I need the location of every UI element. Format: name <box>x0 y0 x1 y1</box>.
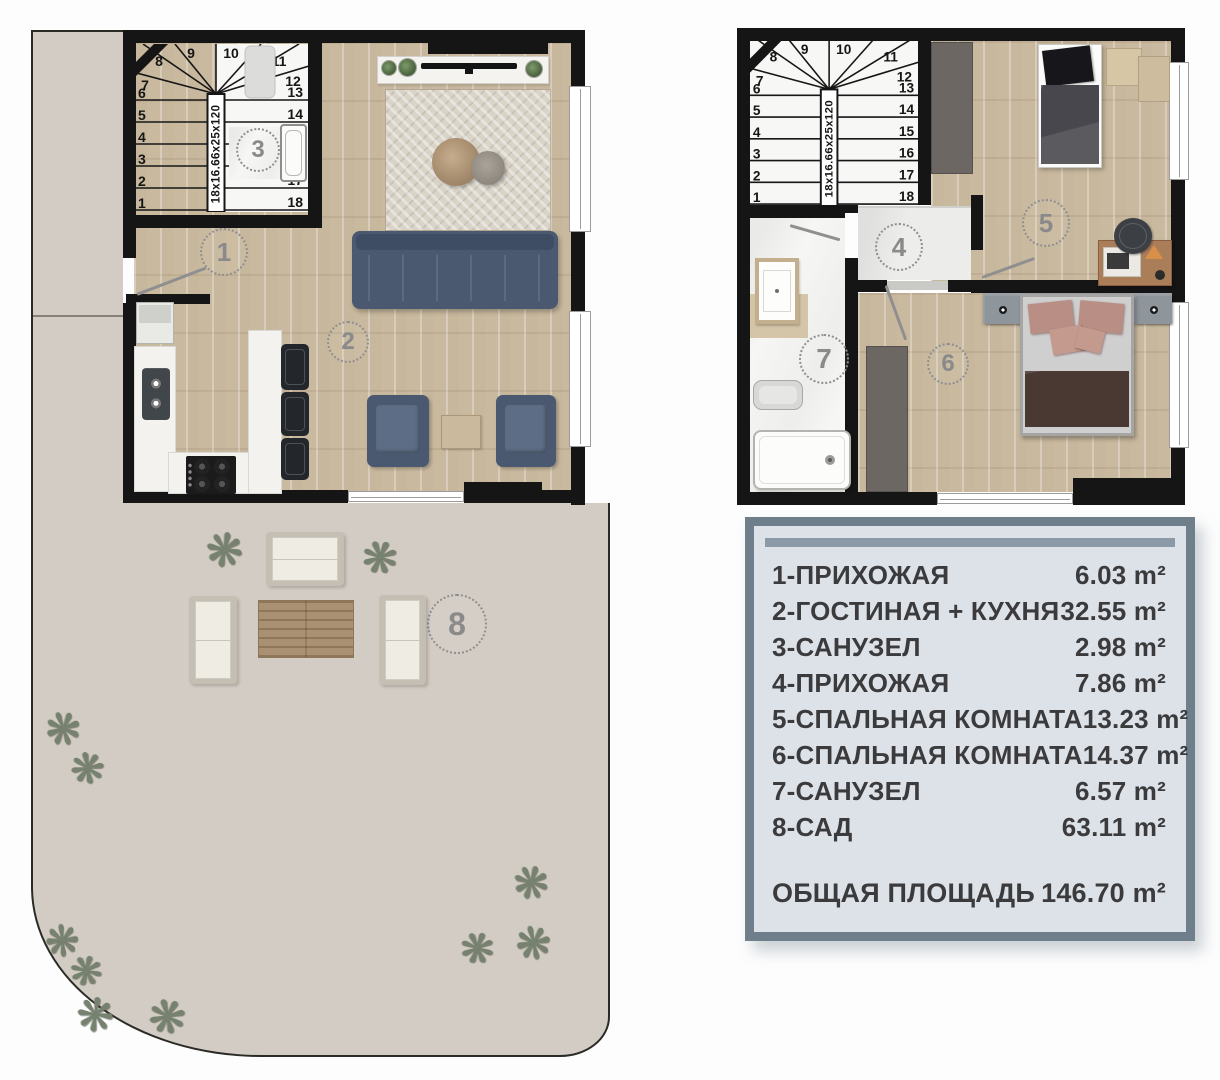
room-area: 14.37 m² <box>1083 740 1189 771</box>
room-label: 4-ПРИХОЖАЯ <box>772 668 949 699</box>
plant-icon: ❋ <box>73 990 118 1041</box>
wall-hall-stub-l <box>845 280 887 292</box>
room-marker-5: 5 <box>1022 199 1070 247</box>
plant-pot-icon <box>526 61 542 77</box>
garden-armchair-right <box>379 595 426 685</box>
hall4-edge <box>858 206 971 208</box>
side-coffee-table <box>471 151 505 185</box>
sliding-door <box>348 491 464 502</box>
wall-right-b <box>571 232 585 313</box>
room-label: 3-САНУЗЕЛ <box>772 632 921 663</box>
bar-stool-1 <box>281 344 309 390</box>
nightstand-left <box>985 296 1021 324</box>
room-marker-6: 6 <box>927 343 969 385</box>
sofa <box>352 231 558 309</box>
garden-table <box>258 600 354 658</box>
room-marker-1: 1 <box>200 228 248 276</box>
wall-bottom-u-b <box>1073 478 1172 505</box>
legend-panel: 1-ПРИХОЖАЯ 6.03 m² 2-ГОСТИНАЯ + КУХНЯ 32… <box>745 517 1195 941</box>
room-label: 5-СПАЛЬНАЯ КОМНАТА <box>772 704 1083 735</box>
svg-text:7: 7 <box>141 77 149 93</box>
room-label: 7-САНУЗЕЛ <box>772 776 921 807</box>
legend-row: 6-СПАЛЬНАЯ КОМНАТА 14.37 m² <box>772 740 1166 776</box>
wall-right-u-b <box>1171 180 1185 302</box>
room-area: 32.55 m² <box>1060 596 1166 627</box>
wardrobe-bedroom6 <box>866 346 908 492</box>
room-label: 6-СПАЛЬНАЯ КОМНАТА <box>772 740 1083 771</box>
wall-bottom-u-a <box>737 492 937 505</box>
wall-hall-right <box>971 195 983 250</box>
nightstand-bedroom5 <box>1106 48 1142 86</box>
room-marker-8: 8 <box>427 594 487 654</box>
pillow <box>1042 45 1094 87</box>
book <box>1107 253 1129 269</box>
room-area: 2.98 m² <box>1075 632 1166 663</box>
wall-stair-bottom <box>123 215 322 228</box>
window-u-right-1 <box>1169 62 1189 180</box>
plant-icon: ❋ <box>67 745 109 792</box>
wardrobe-bedroom5 <box>931 42 973 174</box>
wall-left-u <box>737 28 750 505</box>
desk-chair <box>1114 218 1152 254</box>
window-u-bottom <box>937 493 1073 504</box>
bar-stool-3 <box>281 438 309 480</box>
bench-bedroom5 <box>1138 56 1170 102</box>
nightstand-right <box>1136 296 1172 324</box>
svg-text:4: 4 <box>138 129 146 145</box>
svg-text:10: 10 <box>223 45 239 61</box>
toilet <box>753 380 803 410</box>
legend-row: 1-ПРИХОЖАЯ 6.03 m² <box>772 560 1166 596</box>
total-area: 146.70 m² <box>1041 878 1166 909</box>
double-bed <box>1020 294 1134 436</box>
wall-tv-niche <box>428 41 548 54</box>
side-path <box>31 30 123 505</box>
threshold <box>887 281 948 290</box>
room-label: 2-ГОСТИНАЯ + КУХНЯ <box>772 596 1059 627</box>
armchair-left <box>367 395 429 467</box>
room-label: 8-САД <box>772 812 853 843</box>
wall-stairbottom-u <box>737 205 845 218</box>
legend-row: 2-ГОСТИНАЯ + КУХНЯ 32.55 m² <box>772 596 1166 632</box>
plant-pot-icon <box>382 61 396 75</box>
plant-pot-icon <box>399 59 416 76</box>
svg-text:1: 1 <box>138 195 146 211</box>
upper-floor-plan: 4 5 6 7 <box>640 0 1220 520</box>
washbasin <box>755 258 799 324</box>
room-area: 6.57 m² <box>1075 776 1166 807</box>
fridge <box>136 302 174 344</box>
kitchen-island <box>248 330 282 494</box>
room-marker-7: 7 <box>799 334 849 384</box>
legend-total-row: ОБЩАЯ ПЛОЩАДЬ 146.70 m² <box>772 878 1166 914</box>
tv-mount <box>465 69 473 74</box>
window-u-right-2 <box>1169 302 1189 448</box>
single-bed <box>1038 44 1102 168</box>
room-marker-4: 4 <box>875 223 923 271</box>
svg-text:8: 8 <box>155 53 163 69</box>
wall-bath-top <box>845 205 858 213</box>
legend-row: 7-САНУЗЕЛ 6.57 m² <box>772 776 1166 812</box>
garden-loveseat <box>266 532 344 586</box>
wall-bottom-right <box>542 490 585 503</box>
bar-stool-2 <box>281 392 309 436</box>
cooktop <box>186 456 236 494</box>
svg-text:2: 2 <box>138 173 146 189</box>
legend-row: 5-СПАЛЬНАЯ КОМНАТА 13.23 m² <box>772 704 1166 740</box>
entry-mat <box>245 46 275 98</box>
staircase-upper <box>748 40 920 206</box>
room-marker-2: 2 <box>327 321 369 363</box>
svg-text:5: 5 <box>138 107 146 123</box>
duvet <box>1041 85 1099 164</box>
wall-bottom-stub <box>464 482 542 503</box>
legend-row: 4-ПРИХОЖАЯ 7.86 m² <box>772 668 1166 704</box>
stair-dimension: 18x16.66x25x120 <box>211 105 223 204</box>
shower-tray <box>753 430 851 490</box>
blanket <box>1025 371 1129 427</box>
garden-armchair-left <box>189 596 237 684</box>
wall-right-u-c <box>1171 448 1185 505</box>
bathtub <box>280 124 307 182</box>
wall-hall-stub-r <box>948 280 973 292</box>
legend-topbar <box>765 538 1175 547</box>
total-label: ОБЩАЯ ПЛОЩАДЬ <box>772 878 1035 909</box>
window-right-1 <box>569 86 591 232</box>
legend-row: 8-САД 63.11 m² <box>772 812 1166 848</box>
kitchen-sink <box>142 368 170 420</box>
svg-text:9: 9 <box>187 45 195 61</box>
wall-top-u <box>737 28 1185 41</box>
armchair-right <box>496 395 556 467</box>
path-divider <box>33 315 123 317</box>
mug <box>1155 270 1165 280</box>
svg-text:3: 3 <box>138 151 146 167</box>
legend-rows: 1-ПРИХОЖАЯ 6.03 m² 2-ГОСТИНАЯ + КУХНЯ 32… <box>772 560 1166 914</box>
svg-text:13: 13 <box>287 84 303 100</box>
room-area: 6.03 m² <box>1075 560 1166 591</box>
room-marker-3: 3 <box>236 128 280 172</box>
legend-row: 3-САНУЗЕЛ 2.98 m² <box>772 632 1166 668</box>
room-label: 1-ПРИХОЖАЯ <box>772 560 949 591</box>
svg-text:18: 18 <box>287 194 303 210</box>
ground-floor-plan: 18x16.66x25x120 1 2 3 4 5 6 7 8 9 10 11 … <box>0 0 640 1080</box>
svg-text:14: 14 <box>287 106 303 122</box>
wall-stair-right <box>308 30 322 215</box>
garden-area <box>31 503 610 1057</box>
side-table <box>441 415 481 449</box>
wall-right-a <box>571 30 585 88</box>
wall-right-u-a <box>1171 28 1185 62</box>
floor-plan-page: 18x16.66x25x120 1 2 3 4 5 6 7 8 9 10 11 … <box>0 0 1220 1080</box>
room-area: 63.11 m² <box>1062 812 1166 843</box>
window-right-2 <box>569 311 591 447</box>
room-area: 7.86 m² <box>1075 668 1166 699</box>
room-area: 13.23 m² <box>1083 704 1189 735</box>
wall-stair-right-u <box>918 28 931 205</box>
